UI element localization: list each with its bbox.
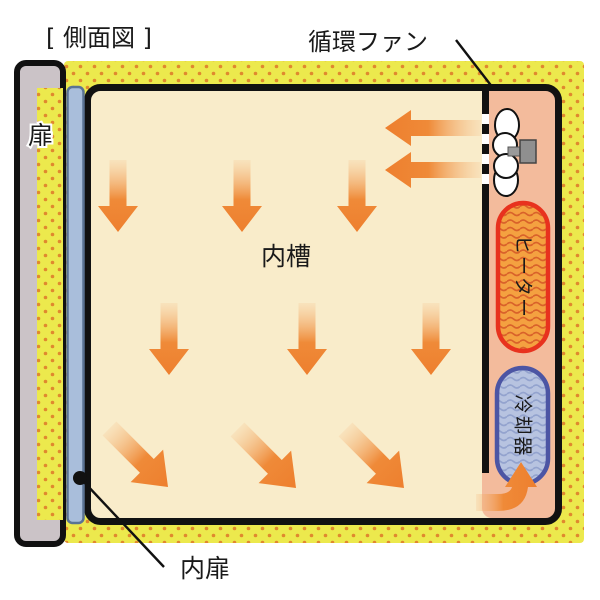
heater: ヒーター (498, 203, 548, 351)
heater-label: ヒーター (512, 235, 534, 319)
page-title: [ 側面図 ] (46, 24, 152, 52)
inner-chamber-label: 内槽 (261, 242, 311, 271)
inner-door (68, 87, 84, 523)
fan-motor (520, 140, 536, 163)
door-label: 扉 (28, 121, 53, 150)
diagram-canvas: ヒーター 冷却器 [ 側面図 ] 循環ファン (0, 0, 600, 600)
door-insulation (37, 88, 63, 520)
circulation-fan-label: 循環ファン (308, 28, 428, 56)
incubator-side-view-diagram: ヒーター 冷却器 [ 側面図 ] 循環ファン (0, 0, 600, 600)
cooler-label: 冷却器 (512, 394, 534, 457)
inner-door-label: 内扉 (180, 554, 230, 583)
